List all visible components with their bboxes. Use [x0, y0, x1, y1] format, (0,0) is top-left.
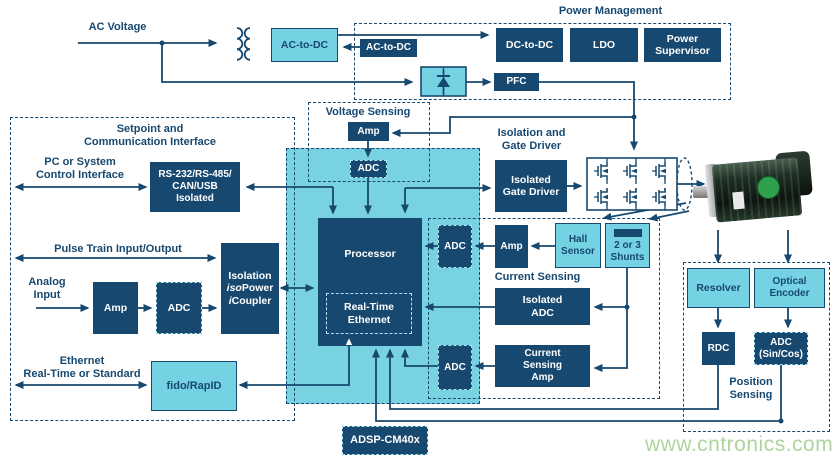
shunts-label: 2 or 3 Shunts [611, 240, 645, 264]
optical-encoder-block: Optical Encoder [754, 268, 825, 308]
current-sense-adc-block: ADC [438, 345, 472, 390]
icoupler-coupler: Coupler [232, 295, 272, 307]
icoupler-iso-prefix: iso [227, 282, 242, 294]
dc-to-dc-block: DC-to-DC [496, 28, 563, 62]
rdc-block: RDC [702, 332, 735, 365]
voltage-sense-adc-block: ADC [350, 160, 387, 178]
voltage-sensing-label: Voltage Sensing [308, 106, 428, 119]
hall-sensor-block: Hall Sensor [555, 223, 601, 268]
icoupler-power: Power [242, 282, 274, 294]
analog-amp-block: Amp [93, 282, 138, 334]
fido-rapid-block: fido/RapID [151, 361, 237, 411]
pulse-train-label: Pulse Train Input/Output [38, 243, 198, 256]
transformer-icon [237, 28, 250, 60]
isolated-adc-block: Isolated ADC [495, 288, 590, 325]
processor-block: Processor Real-Time Ethernet [318, 218, 422, 346]
hall-amp-block: Amp [495, 225, 528, 268]
isolation-gate-driver-label: Isolation and Gate Driver [479, 127, 584, 153]
ac-to-dc-primary-block: AC-to-DC [271, 28, 338, 62]
watermark: www.cntronics.com [645, 433, 833, 457]
voltage-sense-amp-block: Amp [348, 122, 389, 141]
current-sensing-amp-block: Current Sensing Amp [495, 345, 590, 387]
cable-ellipse-icon [677, 158, 692, 210]
ethernet-label: Ethernet Real-Time or Standard [13, 355, 151, 381]
icoupler-line1: Isolation [228, 270, 271, 282]
processor-label: Processor [344, 248, 395, 260]
adsp-cm40x-block: ADSP-CM40x [342, 426, 428, 455]
pc-interface-label: PC or System Control Interface [24, 156, 136, 182]
setpoint-label: Setpoint and Communication Interface [55, 123, 245, 149]
power-supervisor-block: Power Supervisor [644, 28, 721, 62]
ac-to-dc-aux-block: AC-to-DC [360, 39, 417, 57]
motor-label-tag [732, 192, 744, 210]
icoupler-isolation-block: Isolation isoPower iCoupler [221, 243, 279, 334]
power-management-label: Power Management [538, 5, 683, 18]
ac-voltage-label: AC Voltage [70, 21, 165, 34]
inverter-bridge-icon [587, 158, 692, 210]
ldo-block: LDO [570, 28, 638, 62]
analog-input-label: Analog Input [16, 276, 78, 302]
shunts-block: 2 or 3 Shunts [605, 223, 650, 268]
position-sensing-label: Position Sensing [712, 376, 790, 402]
motor-image [697, 150, 817, 230]
shunt-resistor-icon [614, 229, 642, 237]
hall-adc-block: ADC [438, 225, 472, 268]
adc-sincos-block: ADC (Sin/Cos) [754, 332, 808, 365]
rs232-isolated-block: RS-232/RS-485/ CAN/USB Isolated [150, 162, 240, 212]
current-sensing-label: Current Sensing [470, 271, 605, 284]
motor-control-signal-chain-diagram: AC Voltage Power Management Voltage Sens… [0, 0, 835, 463]
pfc-block: PFC [494, 73, 539, 91]
motor-green-sticker [757, 176, 780, 199]
real-time-ethernet-block: Real-Time Ethernet [326, 293, 412, 334]
analog-adc-block: ADC [156, 282, 202, 334]
isolated-gate-driver-block: Isolated Gate Driver [495, 160, 567, 212]
resolver-block: Resolver [687, 268, 750, 308]
